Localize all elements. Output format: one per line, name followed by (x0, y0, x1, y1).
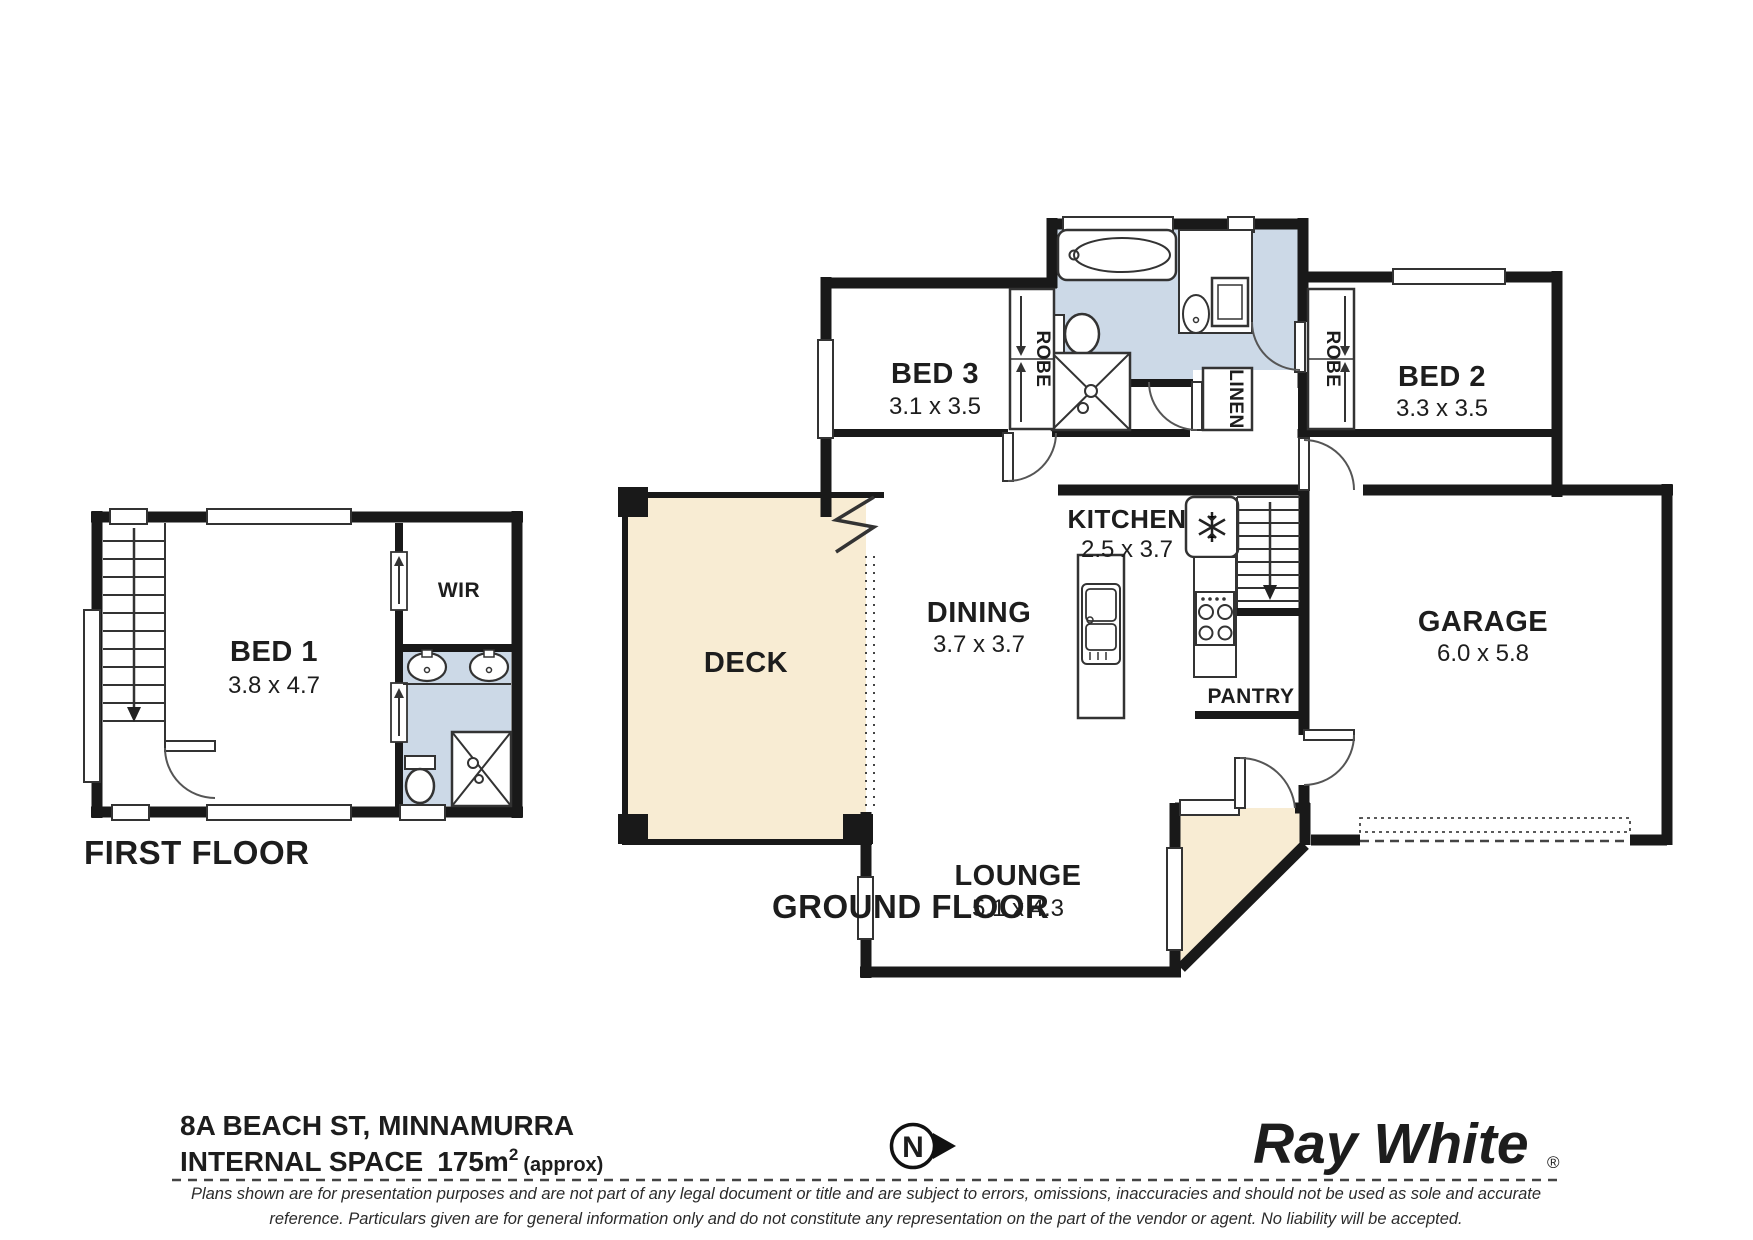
first-stairs (103, 523, 165, 741)
robe-bed2-label: ROBE (1322, 331, 1343, 388)
window (112, 805, 149, 820)
entry-porch-area (1175, 808, 1305, 966)
ground-floor-title: GROUND FLOOR (772, 888, 1049, 925)
garage-dims: 6.0 x 5.8 (1437, 640, 1529, 667)
deck-post (843, 814, 873, 844)
window (1167, 848, 1182, 950)
brand-name: Ray White (1253, 1112, 1529, 1176)
dining-dims: 3.7 x 3.7 (933, 631, 1025, 658)
bed3-label: BED 3 (891, 358, 979, 390)
window (400, 805, 445, 820)
door-leaf (1192, 382, 1202, 430)
floorplan-canvas: BED 3 3.1 x 3.5 BED 2 3.3 x 3.5 KITCHEN … (0, 0, 1753, 1240)
garage-label: GARAGE (1418, 606, 1548, 638)
door-leaf (1295, 322, 1305, 372)
front-door-leaf (1235, 758, 1245, 808)
toilet-icon (1065, 314, 1099, 354)
kitchen-dims: 2.5 x 3.7 (1081, 536, 1173, 563)
dining-label: DINING (927, 597, 1032, 629)
window (207, 509, 351, 524)
kitchen-label: KITCHEN (1067, 504, 1186, 534)
pantry-label: PANTRY (1208, 685, 1295, 708)
window (818, 340, 833, 438)
window (110, 509, 147, 524)
garage-door (1360, 818, 1630, 841)
footer: 8A BEACH ST, MINNAMURRA INTERNAL SPACE17… (172, 1110, 1560, 1228)
ground-floor-plan: BED 3 3.1 x 3.5 BED 2 3.3 x 3.5 KITCHEN … (618, 217, 1673, 978)
compass-arrow (933, 1133, 956, 1159)
disclaimer-line1: Plans shown are for presentation purpose… (191, 1185, 1541, 1203)
floorplan-page: BED 3 3.1 x 3.5 BED 2 3.3 x 3.5 KITCHEN … (0, 0, 1753, 1240)
shower-drain (1085, 385, 1097, 397)
bed2-dims: 3.3 x 3.5 (1396, 395, 1488, 422)
door-leaf (1299, 438, 1309, 490)
bed2-label: BED 2 (1398, 361, 1486, 393)
bed1-dims: 3.8 x 4.7 (228, 672, 320, 699)
linen-label: LINEN (1225, 369, 1246, 429)
toilet-tank (405, 756, 435, 769)
deck-open-edge (866, 556, 874, 808)
door-arc (165, 748, 215, 798)
toilet-icon (406, 769, 434, 803)
bed1-label: BED 1 (230, 636, 318, 668)
window (1393, 269, 1505, 284)
bed3-dims: 3.1 x 3.5 (889, 393, 981, 420)
deck-post (618, 814, 648, 844)
raywhite-logo: Ray White ® (1253, 1112, 1560, 1176)
brand-reg-mark: ® (1547, 1153, 1560, 1172)
north-label: N (902, 1131, 924, 1164)
disclaimer-line2: reference. Particulars given are for gen… (269, 1210, 1462, 1228)
first-floor-title: FIRST FLOOR (84, 834, 309, 871)
shower-drain (468, 758, 478, 768)
door-leaf (1003, 433, 1013, 481)
window (1180, 800, 1239, 815)
north-compass-icon: N (892, 1125, 957, 1168)
window (207, 805, 351, 820)
window (84, 610, 100, 782)
internal-space-text: INTERNAL SPACE175m2(approx) (180, 1145, 603, 1177)
deck-post (618, 487, 648, 517)
first-floor-plan: BED 1 3.8 x 4.7 WIR FIRST FLOOR (84, 509, 523, 871)
robe-bed3-label: ROBE (1032, 331, 1053, 388)
deck-label: DECK (704, 647, 788, 679)
wir-label: WIR (438, 579, 480, 602)
door-leaf (1304, 730, 1354, 740)
door-leaf (165, 741, 215, 751)
ground-stairs (1237, 497, 1303, 612)
address-text: 8A BEACH ST, MINNAMURRA (180, 1110, 574, 1141)
